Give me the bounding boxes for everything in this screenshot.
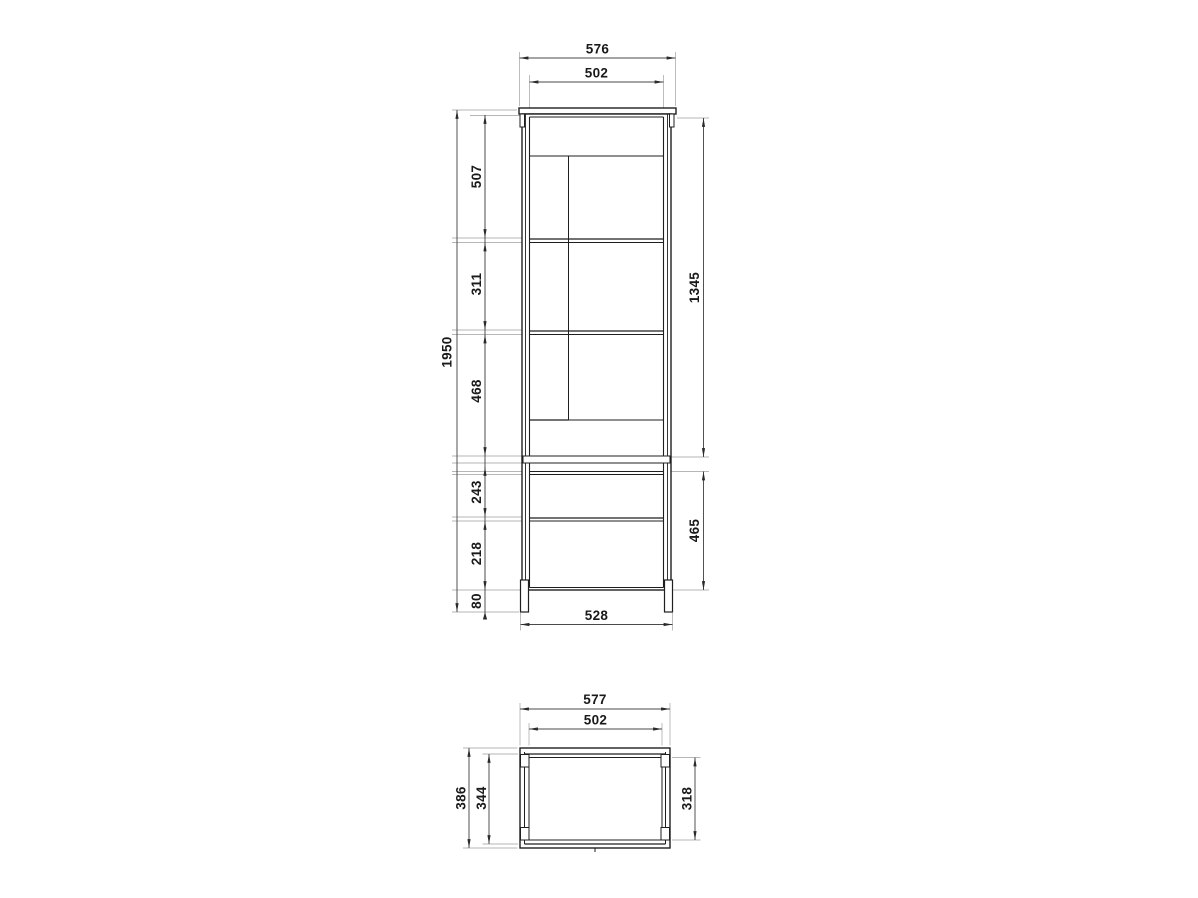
dim-top-depth-outer: 386: [453, 786, 468, 810]
top-corner-post: [521, 755, 530, 768]
front-view: [519, 108, 676, 612]
dim-front-right-upper: 1345: [687, 272, 702, 303]
dim-front-right-lower: 465: [687, 519, 702, 543]
dim-top-depth-inner-left: 344: [474, 786, 489, 810]
dim-front-top-width-outer: 576: [586, 42, 610, 57]
canvas: 576 502 1950 507 311 468 243 218 80 1345…: [0, 0, 1198, 898]
front-right-leg: [665, 580, 673, 612]
front-mid-band: [523, 456, 670, 463]
top-inner-rect: [529, 758, 662, 841]
dim-front-section-5: 218: [469, 542, 484, 566]
dim-front-section-3: 468: [469, 379, 484, 403]
dim-front-section-1: 507: [469, 165, 484, 188]
front-top-panel: [519, 108, 676, 114]
top-corner-post: [661, 828, 670, 841]
top-view: [520, 748, 670, 852]
dim-top-width-inner: 502: [584, 713, 607, 728]
dim-front-section-2: 311: [469, 272, 484, 295]
top-corner-post: [521, 828, 530, 841]
dim-front-bottom-width: 528: [585, 608, 609, 623]
dim-front-height-total: 1950: [439, 336, 454, 367]
dim-top-width-outer: 577: [583, 692, 606, 707]
front-left-leg: [521, 580, 529, 612]
dim-front-section-6: 80: [469, 593, 484, 609]
top-corner-post: [661, 755, 670, 768]
technical-drawing: 576 502 1950 507 311 468 243 218 80 1345…: [0, 0, 1198, 898]
dim-top-depth-inner-right: 318: [679, 787, 694, 811]
dim-front-top-width-inner: 502: [585, 66, 608, 81]
dim-front-section-4: 243: [469, 480, 484, 504]
